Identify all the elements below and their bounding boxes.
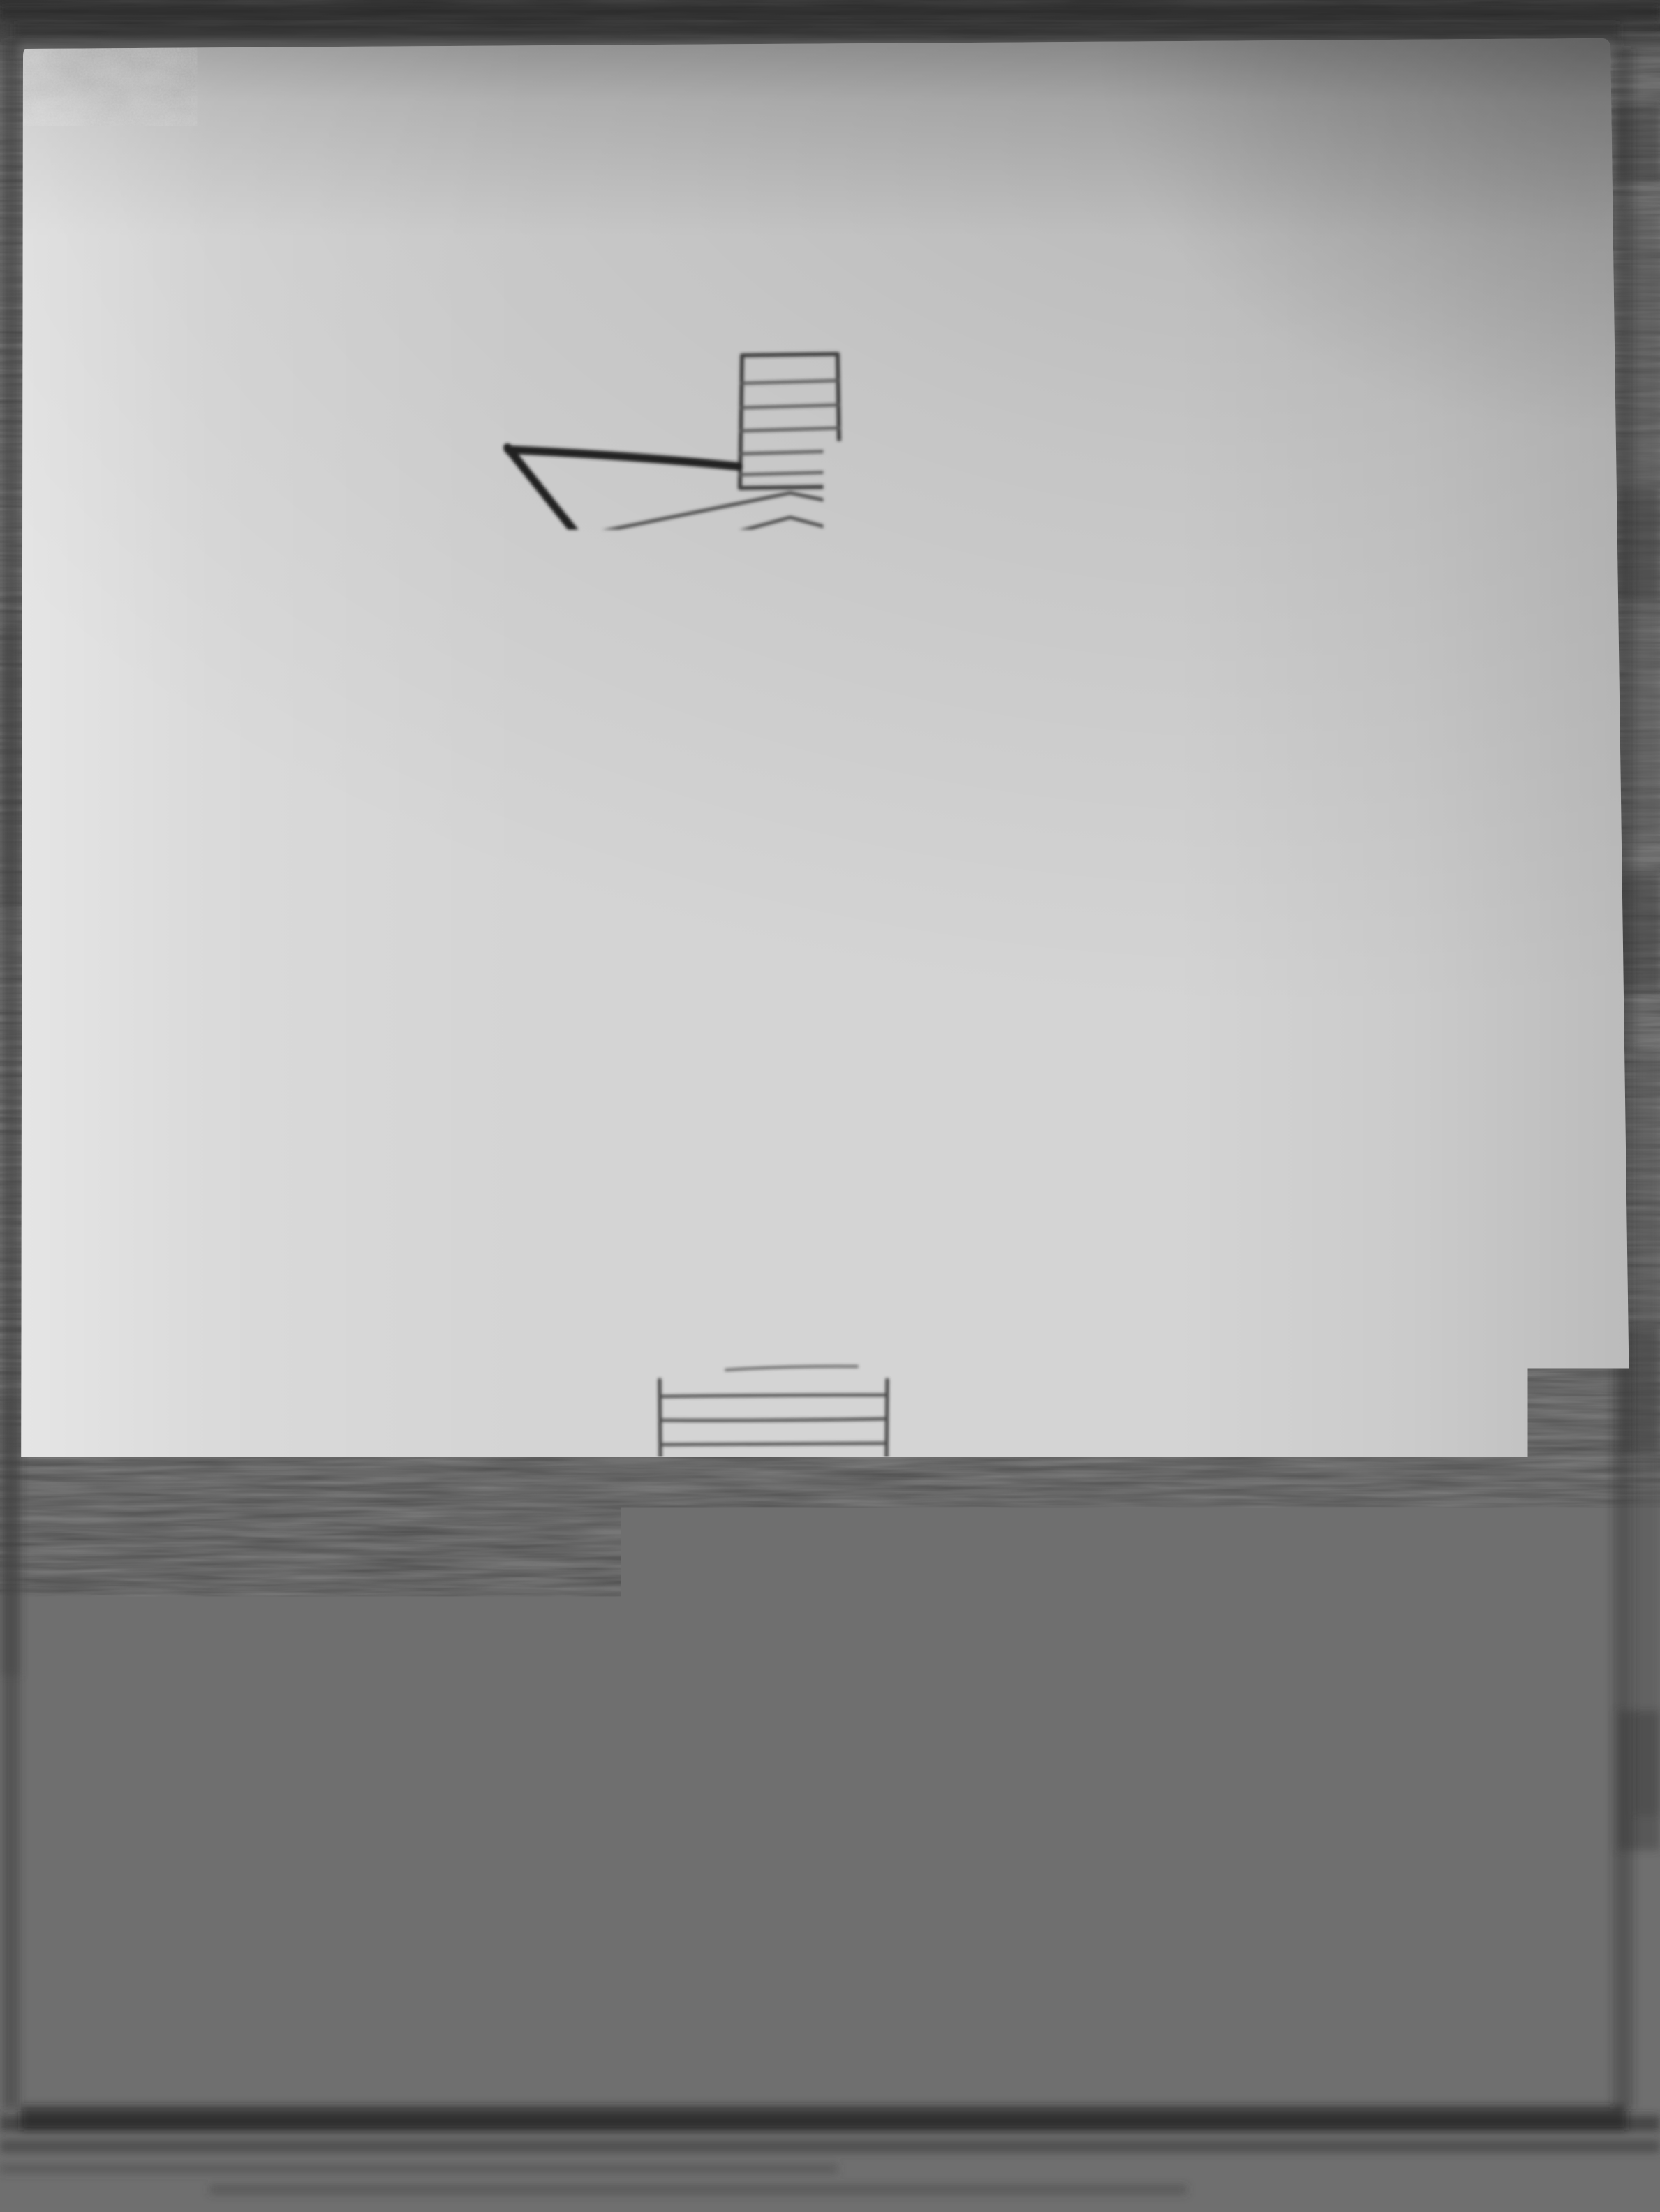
svg-text:Plan: Plan xyxy=(1424,2040,1504,2088)
